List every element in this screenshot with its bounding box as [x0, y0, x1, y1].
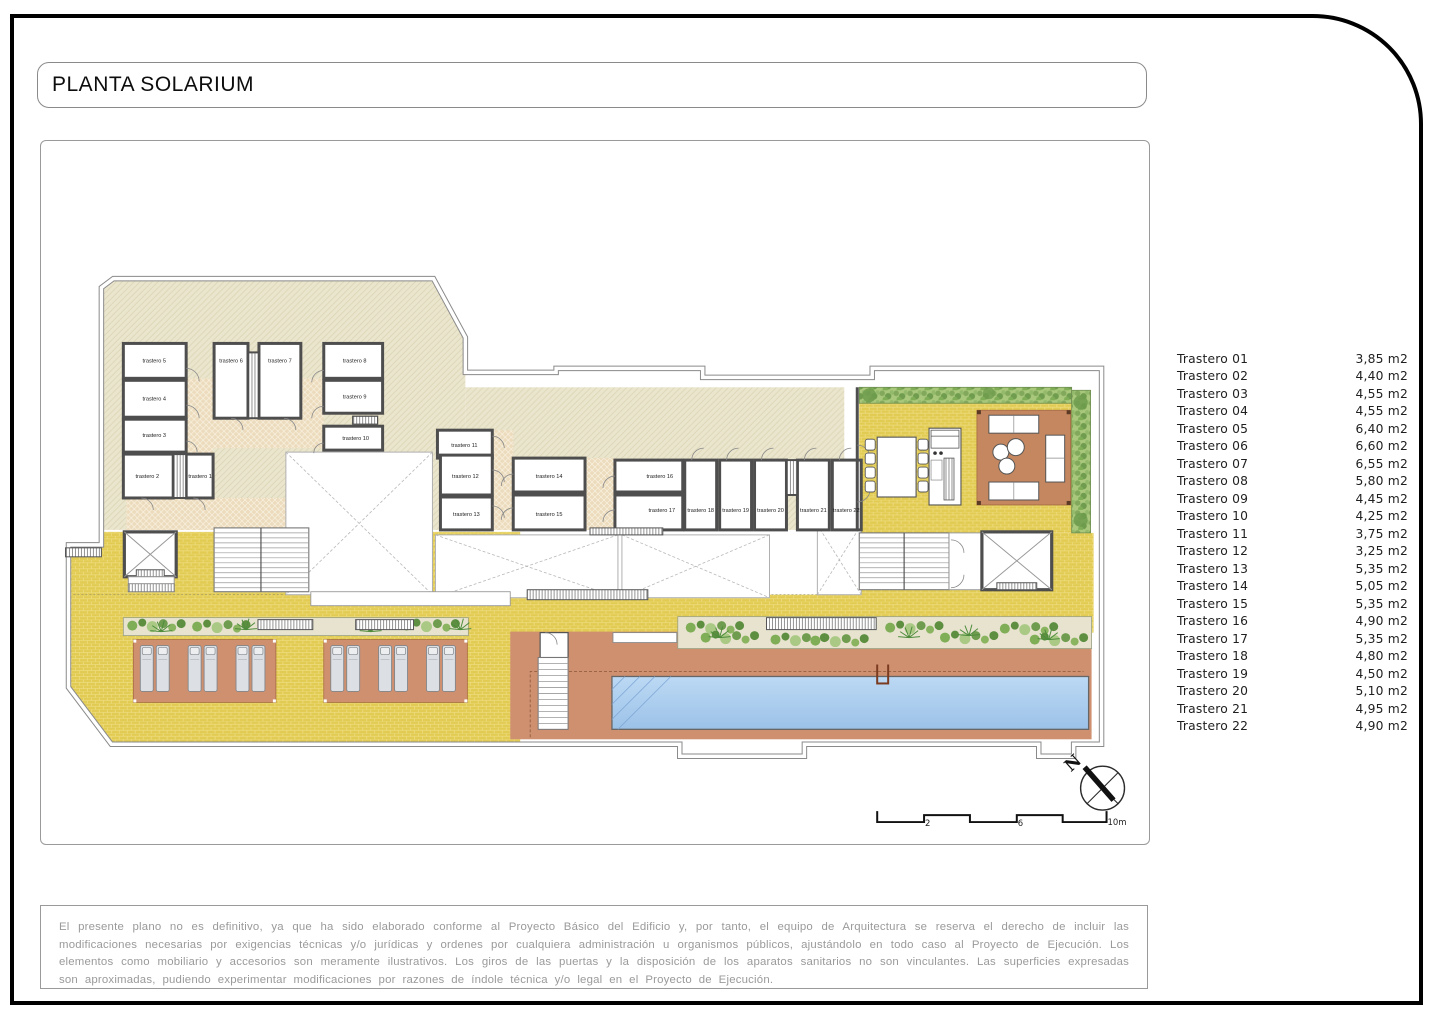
pool-stair [538, 658, 568, 730]
legend-room-area: 5,80 m2 [1356, 474, 1409, 488]
legend-room-name: Trastero 14 [1177, 579, 1248, 593]
legend-room-area: 4,40 m2 [1356, 369, 1409, 383]
legend-room-name: Trastero 03 [1177, 387, 1248, 401]
north-arrow-icon: N [1060, 750, 1124, 810]
page-title: PLANTA SOLARIUM [52, 73, 254, 97]
room-trastero-6 [214, 343, 248, 418]
sofa [1046, 435, 1065, 482]
svg-text:2: 2 [925, 818, 930, 828]
svg-text:trastero 21: trastero 21 [800, 508, 827, 514]
svg-text:trastero 7: trastero 7 [268, 358, 292, 364]
svg-text:trastero 17: trastero 17 [648, 508, 675, 514]
legend-row: Trastero 08 5,80 m2 [1177, 473, 1408, 491]
legend-room-area: 3,75 m2 [1356, 527, 1409, 541]
legend-room-area: 4,55 m2 [1356, 404, 1409, 418]
legend-room-area: 4,25 m2 [1356, 509, 1409, 523]
room-trastero-7 [259, 343, 301, 418]
walkway-bench [311, 592, 510, 606]
legend-room-name: Trastero 04 [1177, 404, 1248, 418]
legend-room-name: Trastero 17 [1177, 632, 1248, 646]
svg-text:6: 6 [1018, 818, 1023, 828]
stair [859, 533, 949, 590]
legend-room-name: Trastero 06 [1177, 439, 1248, 453]
legend-room-name: Trastero 09 [1177, 492, 1248, 506]
legend-row: Trastero 13 5,35 m2 [1177, 560, 1408, 578]
legend-row: Trastero 01 3,85 m2 [1177, 350, 1408, 368]
legend-room-area: 4,90 m2 [1356, 719, 1409, 733]
legend-room-name: Trastero 18 [1177, 649, 1248, 663]
svg-text:trastero 15: trastero 15 [536, 512, 563, 518]
legend-room-area: 5,05 m2 [1356, 579, 1409, 593]
legend-room-area: 4,55 m2 [1356, 387, 1409, 401]
svg-text:trastero 10: trastero 10 [342, 436, 369, 442]
legend-room-area: 4,50 m2 [1356, 667, 1409, 681]
hedge-right [1072, 390, 1091, 533]
bench [767, 618, 877, 630]
legend-row: Trastero 21 4,95 m2 [1177, 700, 1408, 718]
disclaimer-text: El presente plano no es definitivo, ya q… [41, 906, 1147, 989]
shaft [786, 460, 797, 495]
legend-row: Trastero 20 5,10 m2 [1177, 683, 1408, 701]
legend-room-name: Trastero 05 [1177, 422, 1248, 436]
legend-row: Trastero 22 4,90 m2 [1177, 718, 1408, 736]
legend-room-name: Trastero 12 [1177, 544, 1248, 558]
bench [66, 548, 102, 557]
legend-row: Trastero 18 4,80 m2 [1177, 648, 1408, 666]
page: { "title": "PLANTA SOLARIUM", "legend": … [0, 0, 1440, 1024]
svg-text:trastero 20: trastero 20 [757, 508, 784, 514]
deck-bench [613, 633, 677, 643]
legend-room-name: Trastero 15 [1177, 597, 1248, 611]
svg-text:trastero 2: trastero 2 [135, 474, 159, 480]
legend-row: Trastero 03 4,55 m2 [1177, 385, 1408, 403]
room-trastero-20 [755, 460, 787, 530]
legend-room-name: Trastero 13 [1177, 562, 1248, 576]
svg-text:trastero 22: trastero 22 [833, 508, 860, 514]
legend-room-area: 5,35 m2 [1356, 562, 1409, 576]
legend-room-name: Trastero 07 [1177, 457, 1248, 471]
legend-room-area: 6,40 m2 [1356, 422, 1409, 436]
svg-text:10m: 10m [1108, 817, 1127, 827]
legend-row: Trastero 07 6,55 m2 [1177, 455, 1408, 473]
svg-text:trastero 8: trastero 8 [343, 358, 367, 364]
round-table [1007, 439, 1024, 456]
hedge-top [859, 387, 1071, 403]
room-trastero-19 [720, 460, 752, 530]
right-core [859, 532, 1051, 590]
legend-room-name: Trastero 11 [1177, 527, 1248, 541]
legend-row: Trastero 11 3,75 m2 [1177, 525, 1408, 543]
legend-room-area: 3,85 m2 [1356, 352, 1409, 366]
legend-row: Trastero 14 5,05 m2 [1177, 578, 1408, 596]
planter-row-left [123, 618, 471, 636]
legend-row: Trastero 04 4,55 m2 [1177, 403, 1408, 421]
vent-grille [590, 528, 663, 535]
legend-row: Trastero 10 4,25 m2 [1177, 508, 1408, 526]
legend-row: Trastero 19 4,50 m2 [1177, 665, 1408, 683]
scale-bar: 2 6 10m [877, 811, 1126, 828]
legend-room-name: Trastero 16 [1177, 614, 1248, 628]
legend-room-name: Trastero 21 [1177, 702, 1248, 716]
shaft [173, 454, 186, 498]
legend-row: Trastero 05 6,40 m2 [1177, 420, 1408, 438]
legend-room-area: 4,95 m2 [1356, 702, 1409, 716]
legend-row: Trastero 02 4,40 m2 [1177, 368, 1408, 386]
legend-room-area: 5,35 m2 [1356, 632, 1409, 646]
vent-grille [527, 590, 648, 600]
svg-text:trastero 13: trastero 13 [453, 512, 480, 518]
legend-room-area: 5,10 m2 [1356, 684, 1409, 698]
legend-room-area: 3,25 m2 [1356, 544, 1409, 558]
room-trastero-21 [797, 460, 829, 530]
legend-room-name: Trastero 02 [1177, 369, 1248, 383]
legend-room-name: Trastero 19 [1177, 667, 1248, 681]
planter-row-right [678, 617, 1092, 649]
shaft [248, 352, 259, 418]
legend-row: Trastero 16 4,90 m2 [1177, 613, 1408, 631]
legend-row: Trastero 15 5,35 m2 [1177, 595, 1408, 613]
legend-room-name: Trastero 20 [1177, 684, 1248, 698]
legend-room-area: 6,60 m2 [1356, 439, 1409, 453]
disclaimer-box: El presente plano no es definitivo, ya q… [40, 905, 1148, 989]
legend-row: Trastero 17 5,35 m2 [1177, 630, 1408, 648]
legend-room-area: 5,35 m2 [1356, 597, 1409, 611]
legend-room-area: 4,45 m2 [1356, 492, 1409, 506]
legend-row: Trastero 06 6,60 m2 [1177, 438, 1408, 456]
storage-legend: Trastero 01 3,85 m2 Trastero 02 4,40 m2 … [1177, 350, 1408, 735]
legend-row: Trastero 09 4,45 m2 [1177, 490, 1408, 508]
svg-text:trastero 18: trastero 18 [687, 508, 714, 514]
legend-room-area: 4,80 m2 [1356, 649, 1409, 663]
elevator-lobby [949, 533, 982, 590]
kitchen-counter [929, 428, 961, 505]
legend-room-name: Trastero 08 [1177, 474, 1248, 488]
svg-text:trastero 11: trastero 11 [451, 443, 477, 449]
svg-text:trastero 9: trastero 9 [343, 394, 367, 400]
svg-text:trastero 6: trastero 6 [219, 358, 243, 364]
svg-text:trastero 4: trastero 4 [142, 396, 166, 402]
svg-text:trastero 5: trastero 5 [142, 358, 166, 364]
legend-room-name: Trastero 01 [1177, 352, 1248, 366]
bench [356, 620, 414, 630]
legend-room-name: Trastero 10 [1177, 509, 1248, 523]
svg-text:trastero 3: trastero 3 [142, 433, 166, 439]
floor-plan-svg: trastero 5 trastero 4 trastero 3 traster… [41, 141, 1149, 844]
plan-frame: trastero 5 trastero 4 trastero 3 traster… [40, 140, 1150, 845]
stair [214, 528, 309, 592]
left-core [124, 528, 308, 592]
svg-text:trastero 19: trastero 19 [722, 508, 749, 514]
room-trastero-18 [685, 460, 717, 530]
legend-room-name: Trastero 22 [1177, 719, 1248, 733]
title-box: PLANTA SOLARIUM [37, 62, 1147, 108]
svg-text:trastero 12: trastero 12 [452, 474, 479, 480]
bench [258, 620, 313, 630]
legend-room-area: 6,55 m2 [1356, 457, 1409, 471]
round-table [999, 458, 1015, 474]
legend-row: Trastero 12 3,25 m2 [1177, 543, 1408, 561]
duct [353, 416, 378, 424]
svg-text:trastero 1: trastero 1 [188, 474, 212, 480]
svg-text:trastero 14: trastero 14 [536, 474, 563, 480]
sofa-zone [977, 410, 1071, 505]
svg-text:trastero 16: trastero 16 [646, 474, 673, 480]
legend-room-area: 4,90 m2 [1356, 614, 1409, 628]
